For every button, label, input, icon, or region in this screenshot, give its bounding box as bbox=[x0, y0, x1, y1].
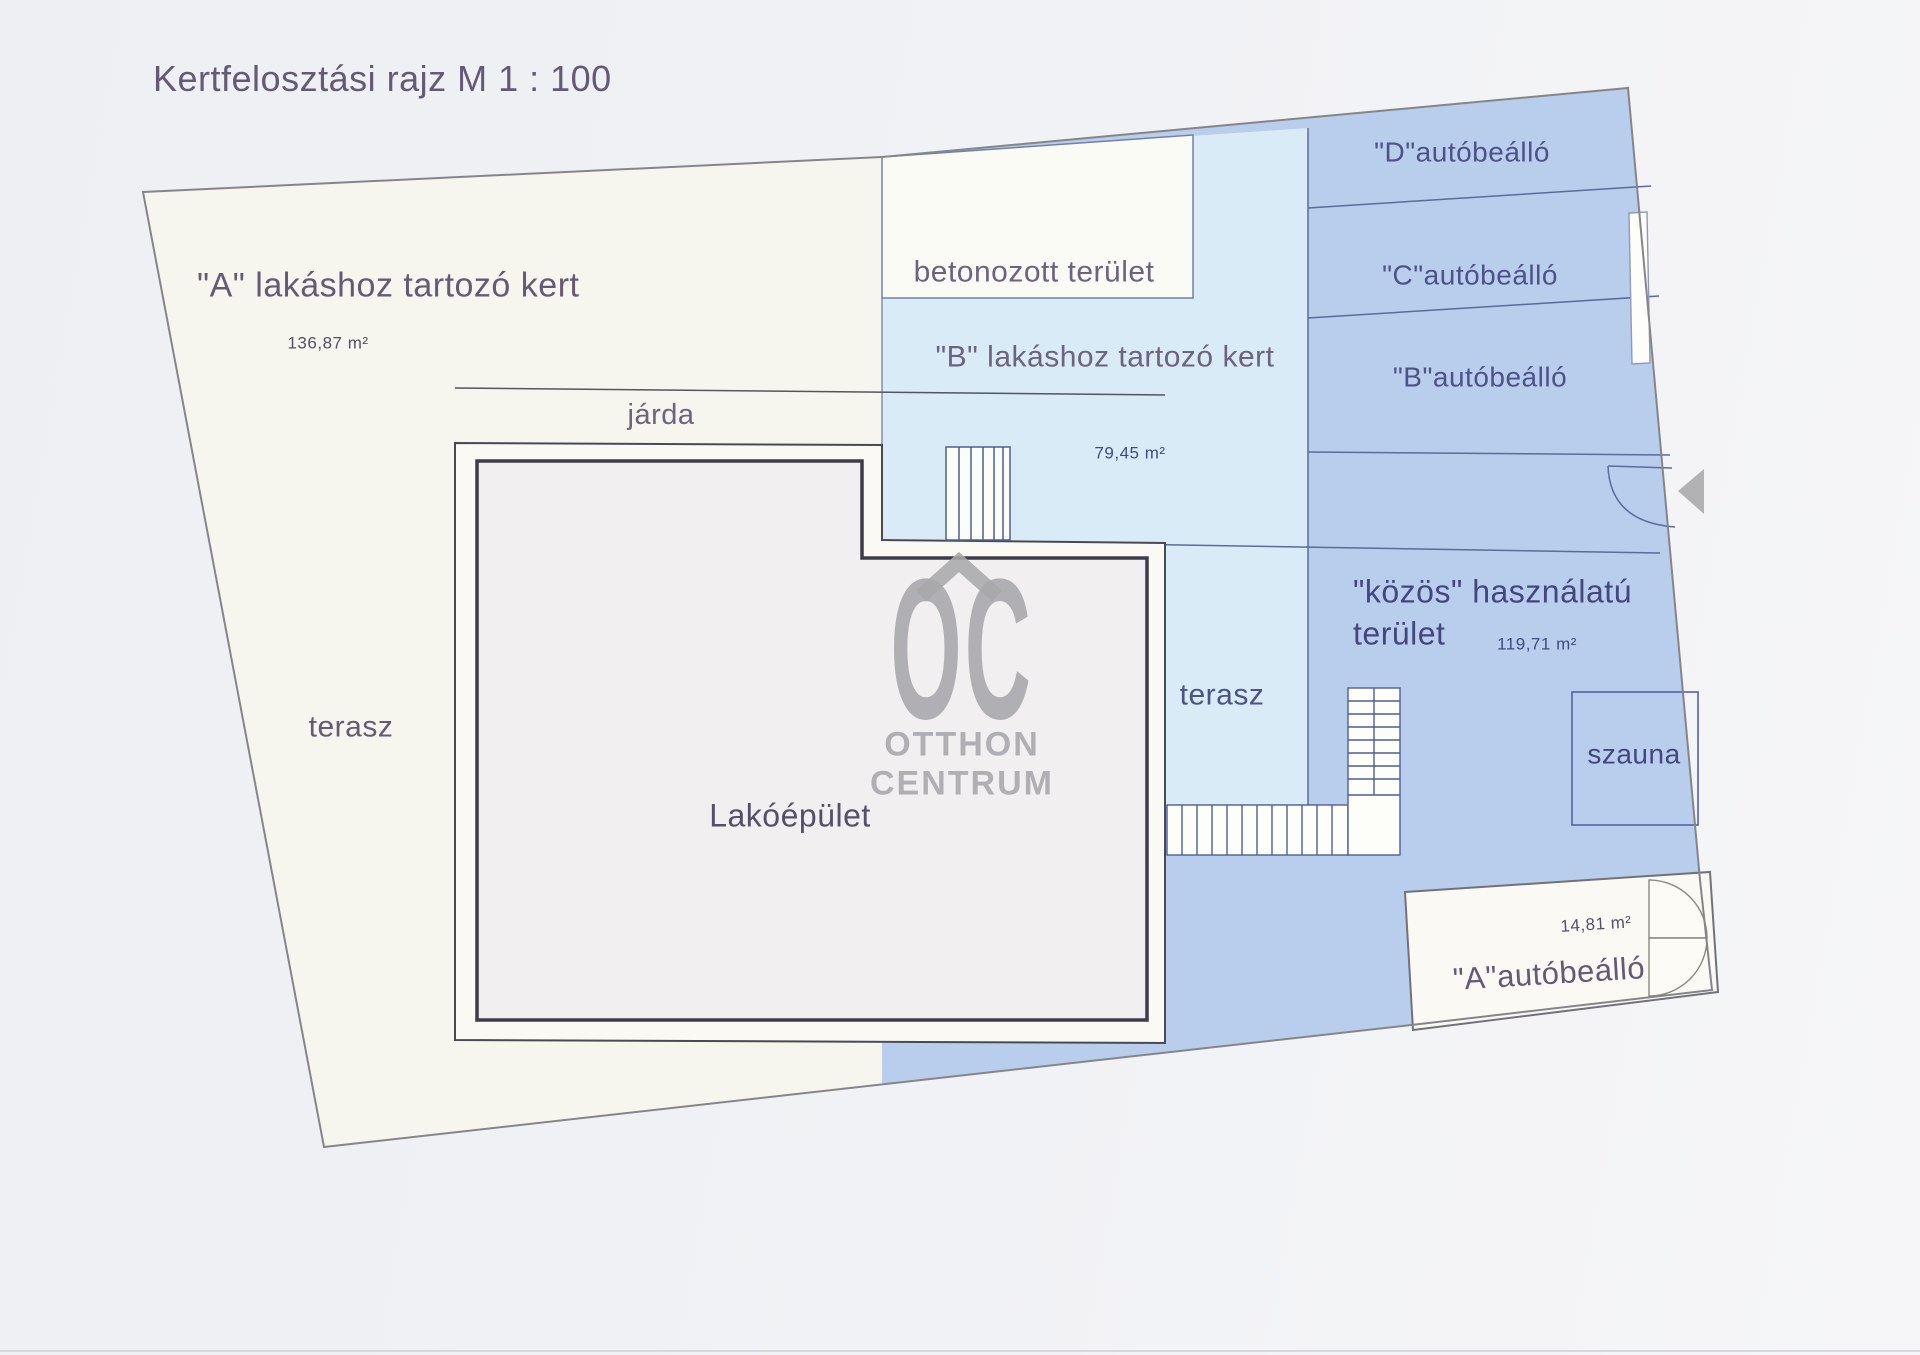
lakoepulet-label: Lakóépület bbox=[709, 798, 871, 833]
kozos-label-line2: terület bbox=[1353, 616, 1445, 651]
stairs-top bbox=[946, 447, 1010, 540]
szauna-label: szauna bbox=[1587, 740, 1680, 771]
tile-path-horizontal bbox=[1167, 805, 1348, 855]
parking-c-label: "C"autóbeálló bbox=[1382, 261, 1558, 292]
site-plan-drawing: OC bbox=[0, 0, 1920, 1355]
scanned-site-plan-page: OC Kertfelosztási rajz M 1 : 100 "A" lak… bbox=[0, 0, 1920, 1355]
tile-path-vertical bbox=[1348, 688, 1400, 855]
watermark-line2: CENTRUM bbox=[870, 765, 1054, 804]
page-title: Kertfelosztási rajz M 1 : 100 bbox=[153, 59, 612, 99]
kert-b-area: 79,45 m² bbox=[1094, 445, 1165, 464]
watermark-line1: OTTHON bbox=[884, 726, 1040, 765]
betonozott-label: betonozott terület bbox=[914, 256, 1155, 289]
kert-a-label: "A" lakáshoz tartozó kert bbox=[197, 267, 579, 304]
terasz-right-label: terasz bbox=[1180, 679, 1265, 712]
kozos-area: 119,71 m² bbox=[1497, 636, 1577, 655]
direction-arrow-icon bbox=[1678, 469, 1704, 514]
kozos-label-line1: "közös" használatú bbox=[1353, 574, 1632, 609]
terasz-left-label: terasz bbox=[309, 711, 394, 744]
kert-a-area: 136,87 m² bbox=[287, 335, 368, 354]
kert-b-label: "B" lakáshoz tartozó kert bbox=[936, 341, 1275, 374]
jarda-label: járda bbox=[628, 400, 695, 432]
parking-d-label: "D"autóbeálló bbox=[1374, 138, 1550, 169]
parking-b-label: "B"autóbeálló bbox=[1393, 363, 1567, 394]
